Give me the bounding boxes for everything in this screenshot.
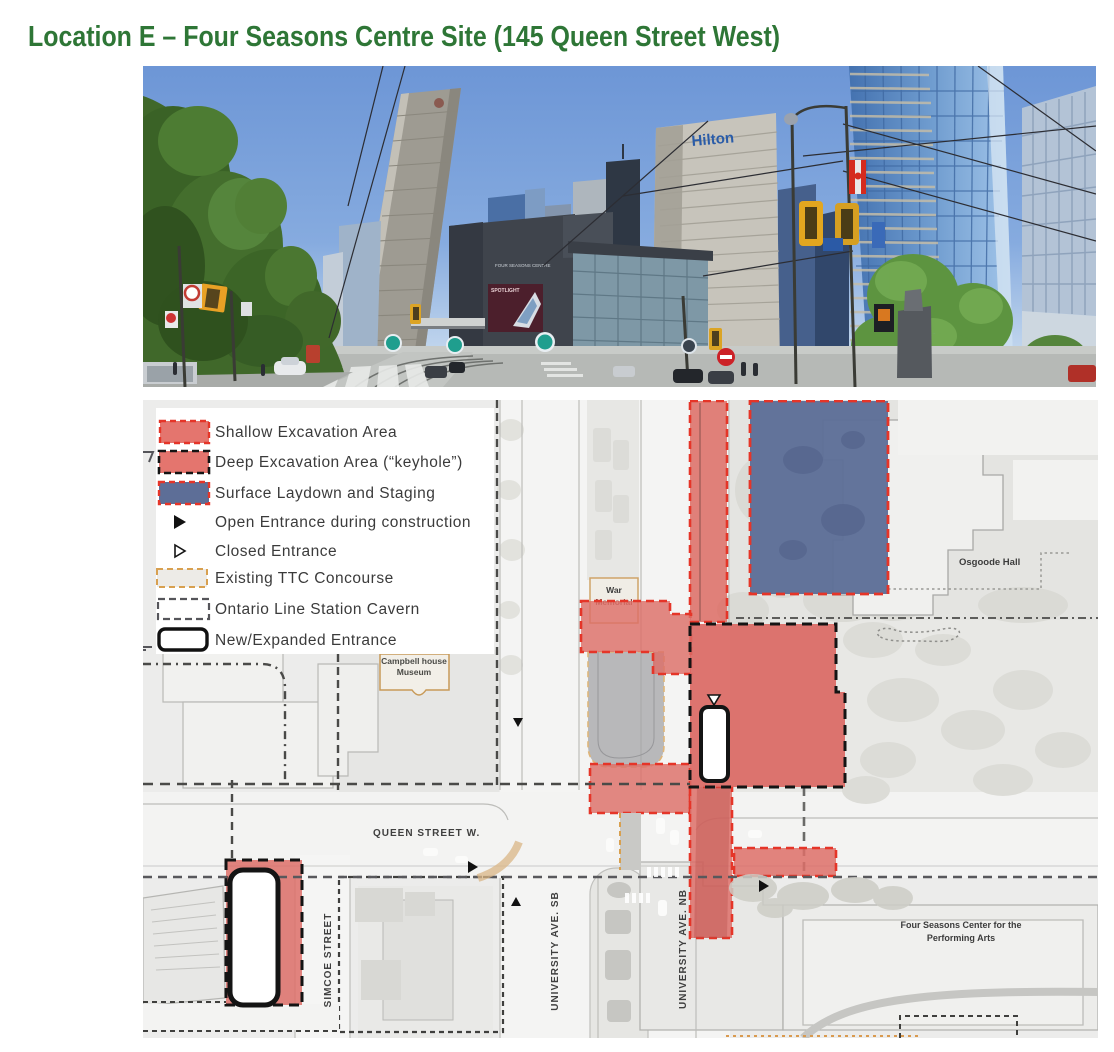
svg-text:SPOTLIGHT: SPOTLIGHT	[491, 288, 520, 294]
svg-text:SIMCOE STREET: SIMCOE STREET	[323, 913, 334, 1008]
svg-text:New/Expanded Entrance: New/Expanded Entrance	[215, 632, 397, 649]
svg-text:Museum: Museum	[397, 667, 432, 677]
svg-text:FOUR SEASONS CENTRE: FOUR SEASONS CENTRE	[495, 263, 551, 268]
svg-text:War: War	[606, 585, 622, 595]
svg-text:UNIVERSITY AVE. SB: UNIVERSITY AVE. SB	[550, 891, 561, 1011]
svg-text:Closed Entrance: Closed Entrance	[215, 543, 337, 560]
svg-text:Campbell house: Campbell house	[381, 656, 447, 666]
svg-text:Deep Excavation Area (“keyhole: Deep Excavation Area (“keyhole”)	[215, 454, 463, 471]
svg-text:Osgoode Hall: Osgoode Hall	[959, 557, 1020, 568]
svg-text:Surface Laydown and Staging: Surface Laydown and Staging	[215, 485, 435, 502]
svg-text:QUEEN STREET W.: QUEEN STREET W.	[373, 828, 480, 839]
svg-text:Existing TTC Concourse: Existing TTC Concourse	[215, 570, 394, 587]
svg-text:Ontario Line Station Cavern: Ontario Line Station Cavern	[215, 601, 420, 618]
svg-text:Four Seasons Center for the: Four Seasons Center for the	[900, 920, 1021, 930]
svg-text:UNIVERSITY AVE. NB: UNIVERSITY AVE. NB	[678, 889, 689, 1009]
svg-text:Performing Arts: Performing Arts	[927, 933, 995, 943]
svg-text:Open Entrance during construct: Open Entrance during construction	[215, 514, 471, 531]
svg-text:Shallow Excavation Area: Shallow Excavation Area	[215, 424, 397, 441]
